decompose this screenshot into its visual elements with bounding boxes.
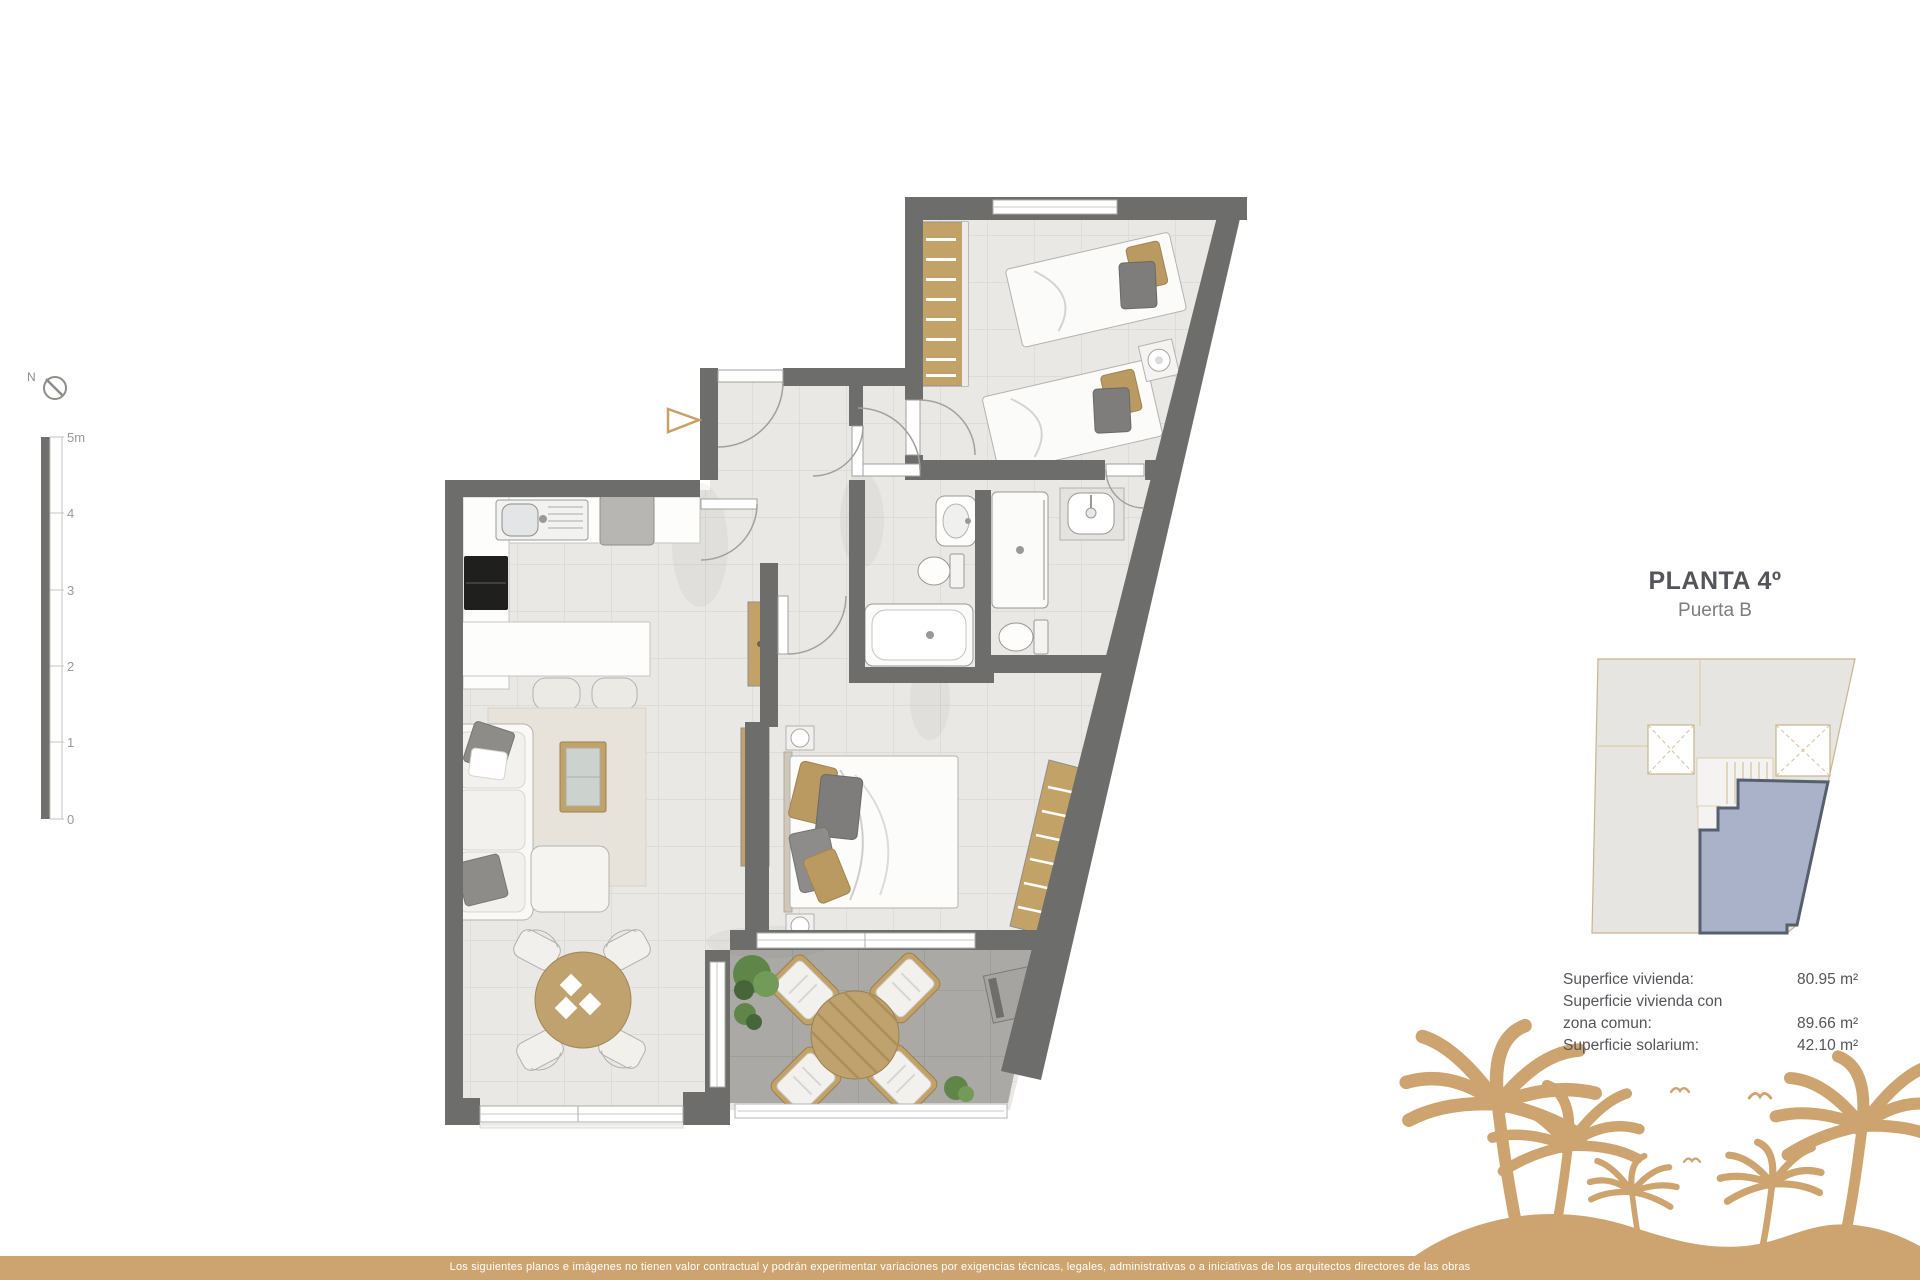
coffee-table [560, 742, 606, 812]
key-plan [1592, 659, 1855, 933]
area-label-line: Superficie vivienda con [1563, 991, 1797, 1013]
bird-icon [1684, 1159, 1700, 1162]
cooktop [464, 556, 508, 610]
elevator-shaft [1776, 725, 1830, 776]
area-label-line: Superficie solarium: [1563, 1035, 1797, 1057]
surface-areas-table: Superfice vivienda: 80.95 m² Superficie … [1563, 969, 1883, 1057]
footer-disclaimer: Los siguientes planos e imágenes no tien… [0, 1261, 1920, 1273]
plan-title-block: PLANTA 4º Puerta B [1585, 567, 1845, 622]
scale-label: 3 [67, 583, 74, 598]
kitchen-sink [496, 500, 588, 540]
glass-railing [735, 1104, 1007, 1118]
floor-plan [445, 197, 1247, 1128]
area-value: 80.95 m² [1797, 969, 1858, 991]
area-row: Superfice vivienda: 80.95 m² [1563, 969, 1883, 991]
shower [992, 492, 1048, 608]
north-compass-icon: N [27, 370, 66, 399]
vanity-basin [1060, 488, 1124, 540]
master-bed [788, 756, 958, 908]
page-subtitle: Puerta B [1585, 600, 1845, 622]
window [993, 200, 1117, 214]
washbasin [936, 496, 976, 546]
twin-wardrobe [920, 222, 968, 386]
toilet [918, 554, 964, 588]
elevator-shaft [1648, 725, 1694, 774]
bird-icon [1671, 1088, 1689, 1092]
area-label: Superficie vivienda con zona comun: [1563, 991, 1797, 1035]
bar-stool [592, 678, 637, 710]
floorplan-page: N 5m 4 3 2 1 0 [0, 0, 1920, 1280]
area-row: Superficie solarium: 42.10 m² [1563, 1035, 1883, 1057]
bar-stool [533, 678, 580, 710]
page-title: PLANTA 4º [1585, 567, 1845, 596]
toilet [999, 620, 1048, 654]
sliding-door [710, 962, 725, 1087]
scale-label: 5m [67, 430, 85, 445]
kitchen-island [460, 622, 650, 676]
scale-label: 2 [67, 659, 74, 674]
area-value: 42.10 m² [1797, 1035, 1858, 1057]
scale-label: 4 [67, 506, 74, 521]
window [757, 933, 975, 948]
area-label-line: Superfice vivienda: [1563, 969, 1797, 991]
area-row: Superficie vivienda con zona comun: 89.6… [1563, 991, 1883, 1035]
entry-arrow-icon [668, 409, 699, 432]
compass-label: N [27, 370, 36, 384]
scale-label: 1 [67, 735, 74, 750]
area-label: Superficie solarium: [1563, 1035, 1797, 1057]
bathtub [865, 604, 973, 666]
scale-bar: 5m 4 3 2 1 0 [41, 430, 85, 827]
bedside-table [1138, 339, 1179, 382]
fridge [600, 495, 654, 545]
window [480, 1106, 683, 1128]
area-label-line: zona comun: [1563, 1013, 1797, 1035]
scale-label: 0 [67, 812, 74, 827]
area-label: Superfice vivienda: [1563, 969, 1797, 991]
nightstand [786, 726, 814, 750]
area-value: 89.66 m² [1797, 1013, 1858, 1035]
bird-icon [1749, 1093, 1771, 1098]
floorplan-graphic: N 5m 4 3 2 1 0 [0, 0, 1920, 1280]
palm-illustration [1406, 1026, 1920, 1280]
